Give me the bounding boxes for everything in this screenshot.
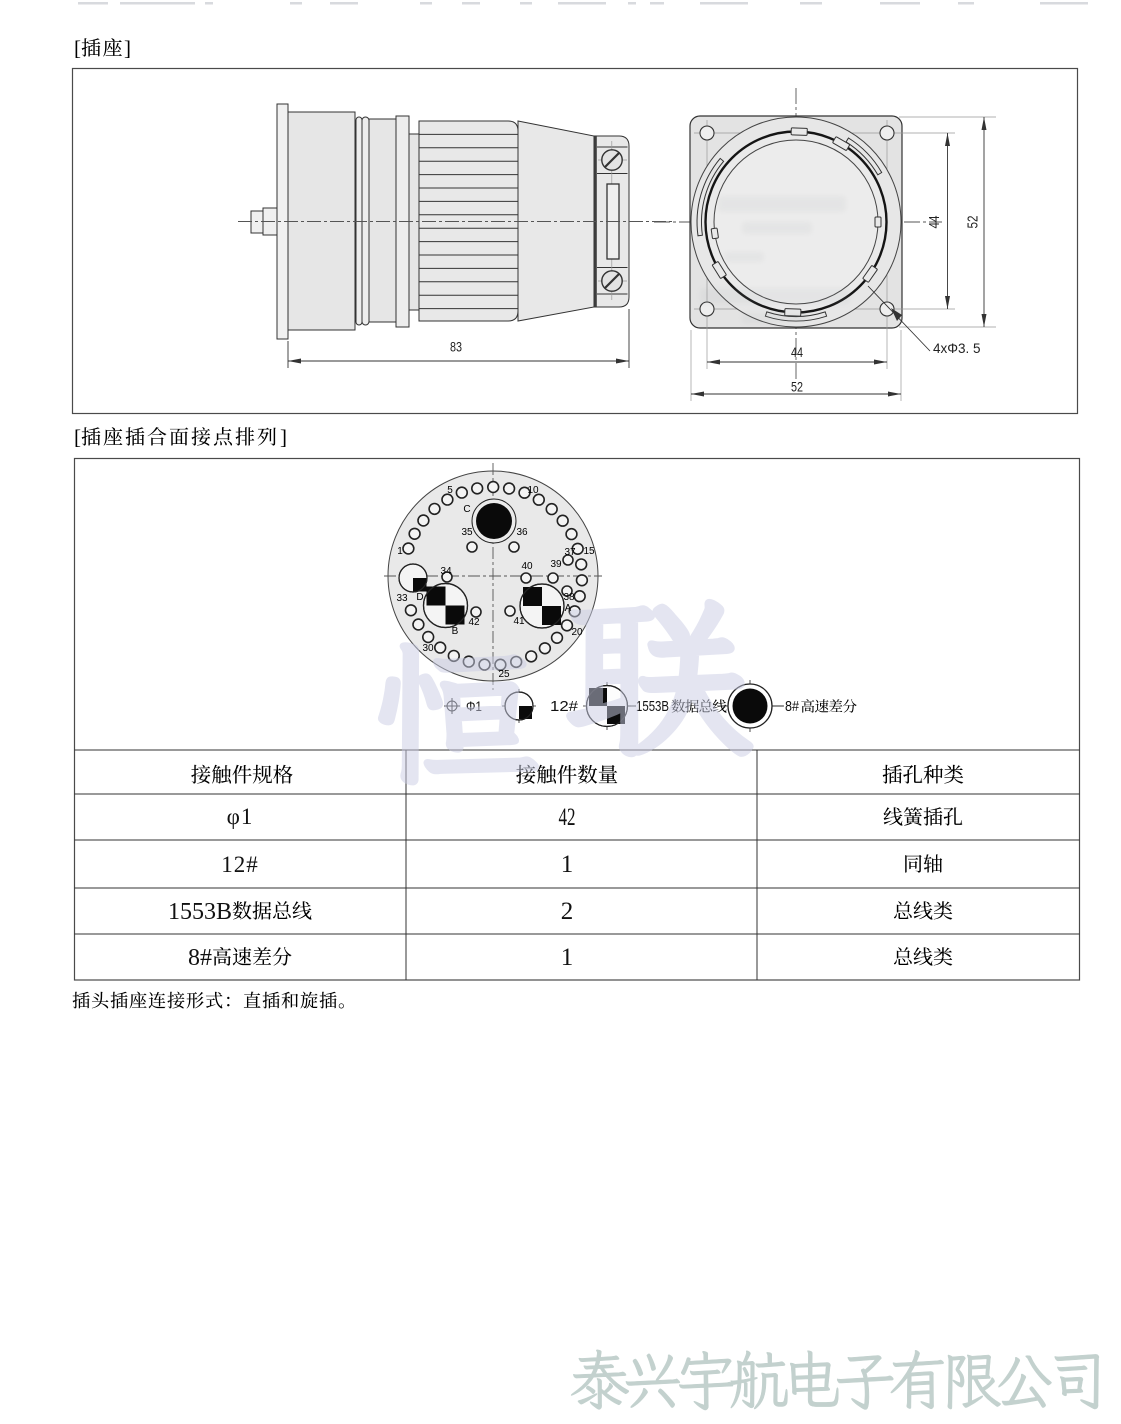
svg-text:83: 83 — [450, 339, 462, 355]
svg-text:15: 15 — [583, 546, 595, 557]
svg-text:8#: 8# — [188, 945, 212, 971]
svg-text:20: 20 — [571, 627, 583, 638]
svg-text:42: 42 — [559, 804, 576, 831]
svg-text:C: C — [463, 504, 470, 515]
svg-text:1553B: 1553B — [636, 698, 669, 715]
svg-text:1553B: 1553B — [168, 899, 232, 925]
svg-text:41: 41 — [513, 616, 525, 627]
svg-text:42: 42 — [468, 617, 480, 628]
svg-text:1: 1 — [561, 851, 574, 878]
svg-text:33: 33 — [396, 593, 408, 604]
svg-text:12#: 12# — [221, 852, 259, 877]
svg-text:[: [ — [74, 36, 81, 60]
svg-text:B: B — [452, 626, 459, 637]
svg-text:[: [ — [74, 425, 81, 449]
svg-text:4xΦ3. 5: 4xΦ3. 5 — [933, 341, 981, 356]
svg-text:25: 25 — [498, 669, 510, 680]
svg-text:35: 35 — [461, 527, 473, 538]
svg-text:38: 38 — [563, 592, 575, 603]
svg-text:D: D — [416, 592, 423, 603]
svg-text:44: 44 — [791, 344, 803, 360]
svg-text:1: 1 — [397, 546, 403, 557]
svg-text:φ1: φ1 — [227, 804, 254, 829]
svg-text:52: 52 — [791, 379, 803, 395]
svg-text:2: 2 — [561, 898, 574, 925]
svg-text:40: 40 — [521, 561, 533, 572]
svg-text:37: 37 — [564, 547, 576, 558]
svg-text:34: 34 — [440, 566, 452, 577]
svg-text:]: ] — [280, 425, 287, 449]
svg-text:10: 10 — [527, 485, 539, 496]
svg-text:]: ] — [124, 36, 131, 60]
svg-text:30: 30 — [422, 643, 434, 654]
svg-text:5: 5 — [447, 485, 453, 496]
svg-text:39: 39 — [550, 559, 562, 570]
svg-text:1: 1 — [561, 944, 574, 971]
svg-text:52: 52 — [966, 216, 982, 229]
svg-text:36: 36 — [516, 527, 528, 538]
svg-text:44: 44 — [927, 216, 943, 229]
svg-text:8#: 8# — [785, 698, 800, 715]
